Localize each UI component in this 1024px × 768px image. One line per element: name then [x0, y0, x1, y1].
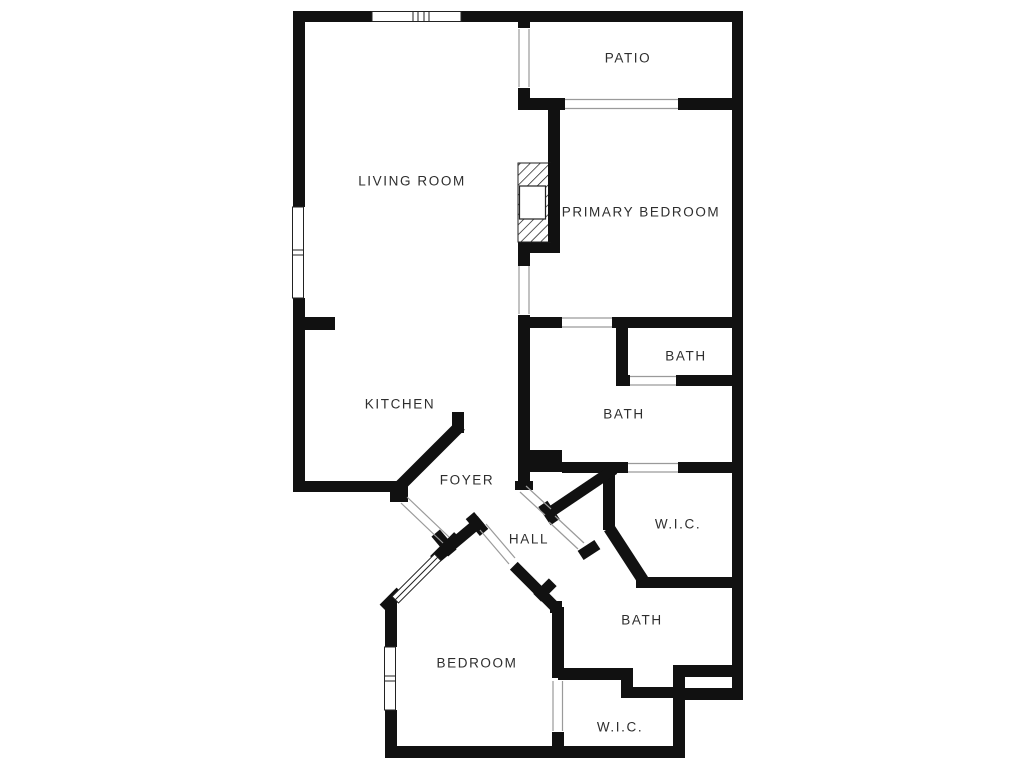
room-label-bedroom: BEDROOM [437, 656, 518, 671]
primary-bath-door-opening [562, 318, 612, 327]
room-label-wic-lower: W.I.C. [597, 720, 643, 735]
room-label-foyer: FOYER [440, 473, 495, 488]
window-top-living [372, 12, 461, 22]
room-label-bath-small: BATH [665, 349, 706, 364]
room-label-primary-bedroom: PRIMARY BEDROOM [562, 205, 721, 220]
floor-plan-drawing [0, 0, 1024, 768]
firebox [520, 186, 546, 219]
upper-wic-door-opening [628, 464, 678, 473]
window-bedroom-diagonal [392, 554, 441, 603]
floor-plan: LIVING ROOM PATIO PRIMARY BEDROOM BATH B… [0, 0, 1024, 768]
windows [293, 12, 462, 711]
patio-window-opening [565, 100, 678, 109]
room-label-wic-upper: W.I.C. [655, 517, 701, 532]
room-label-patio: PATIO [605, 51, 652, 66]
fireplace [518, 163, 560, 242]
room-label-bath-primary: BATH [603, 407, 644, 422]
room-label-living-room: LIVING ROOM [358, 174, 466, 189]
patio-opening [519, 29, 529, 87]
room-label-kitchen: KITCHEN [365, 397, 435, 412]
small-bath-door-opening [630, 377, 676, 386]
window-bedroom-west [385, 647, 396, 710]
lower-wic-door-opening [553, 681, 563, 731]
room-label-hall: HALL [509, 532, 549, 547]
window-left-living [293, 207, 304, 298]
room-label-bath-lower: BATH [621, 613, 662, 628]
primary-bedroom-door-opening [519, 266, 529, 314]
